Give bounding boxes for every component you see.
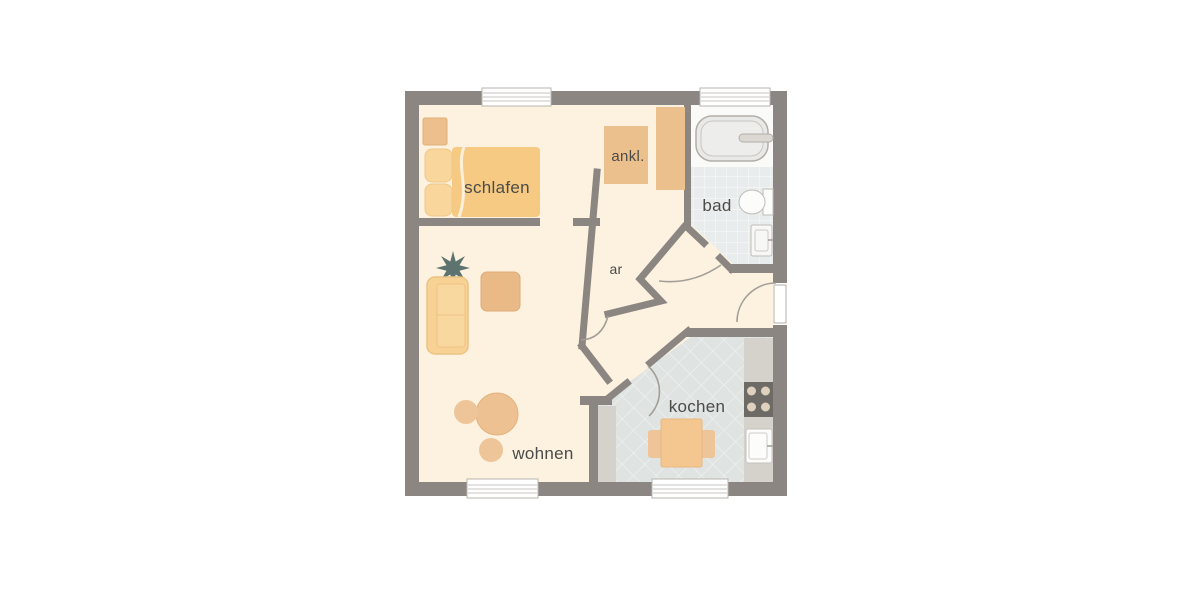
toilet-icon	[739, 189, 773, 215]
wall-schlafen-bottom	[419, 218, 540, 226]
wall-kitchen-top	[686, 328, 773, 337]
label-kochen: kochen	[669, 397, 726, 416]
window-bottom-left	[467, 479, 538, 498]
label-wohnen: wohnen	[511, 444, 573, 463]
wall-kitchen-left	[589, 396, 598, 482]
kitchen-table	[661, 419, 702, 467]
floor-plan-canvas: schlafen ankl. bad ar wohnen kochen	[0, 0, 1200, 600]
stool	[479, 438, 503, 462]
window-bottom-right	[652, 479, 728, 498]
label-schlafen: schlafen	[464, 178, 530, 197]
closet	[656, 107, 685, 190]
bathtub-icon	[696, 116, 773, 161]
stool	[454, 400, 478, 424]
floor-plan: schlafen ankl. bad ar wohnen kochen	[0, 0, 1200, 600]
stove-icon	[744, 382, 773, 417]
wall-bath-left	[684, 105, 691, 229]
label-bad: bad	[702, 196, 731, 215]
entrance-door	[773, 283, 787, 325]
coffee-table	[481, 272, 520, 311]
counter-left	[598, 406, 616, 482]
kitchen-sink-icon	[746, 429, 773, 463]
pillow	[425, 184, 452, 216]
washbasin-icon	[751, 225, 773, 256]
nightstand	[423, 118, 447, 145]
entrance-door-leaf	[774, 285, 786, 323]
bathtub-faucet	[739, 134, 773, 142]
wall-bath-bottom	[729, 264, 773, 273]
sofa	[427, 277, 468, 354]
label-ankleide: ankl.	[611, 148, 644, 165]
window-top-right	[700, 88, 770, 106]
pillow	[425, 149, 452, 182]
label-abstellraum: ar	[609, 261, 622, 277]
window-top-left	[482, 88, 551, 106]
round-table	[476, 393, 518, 435]
